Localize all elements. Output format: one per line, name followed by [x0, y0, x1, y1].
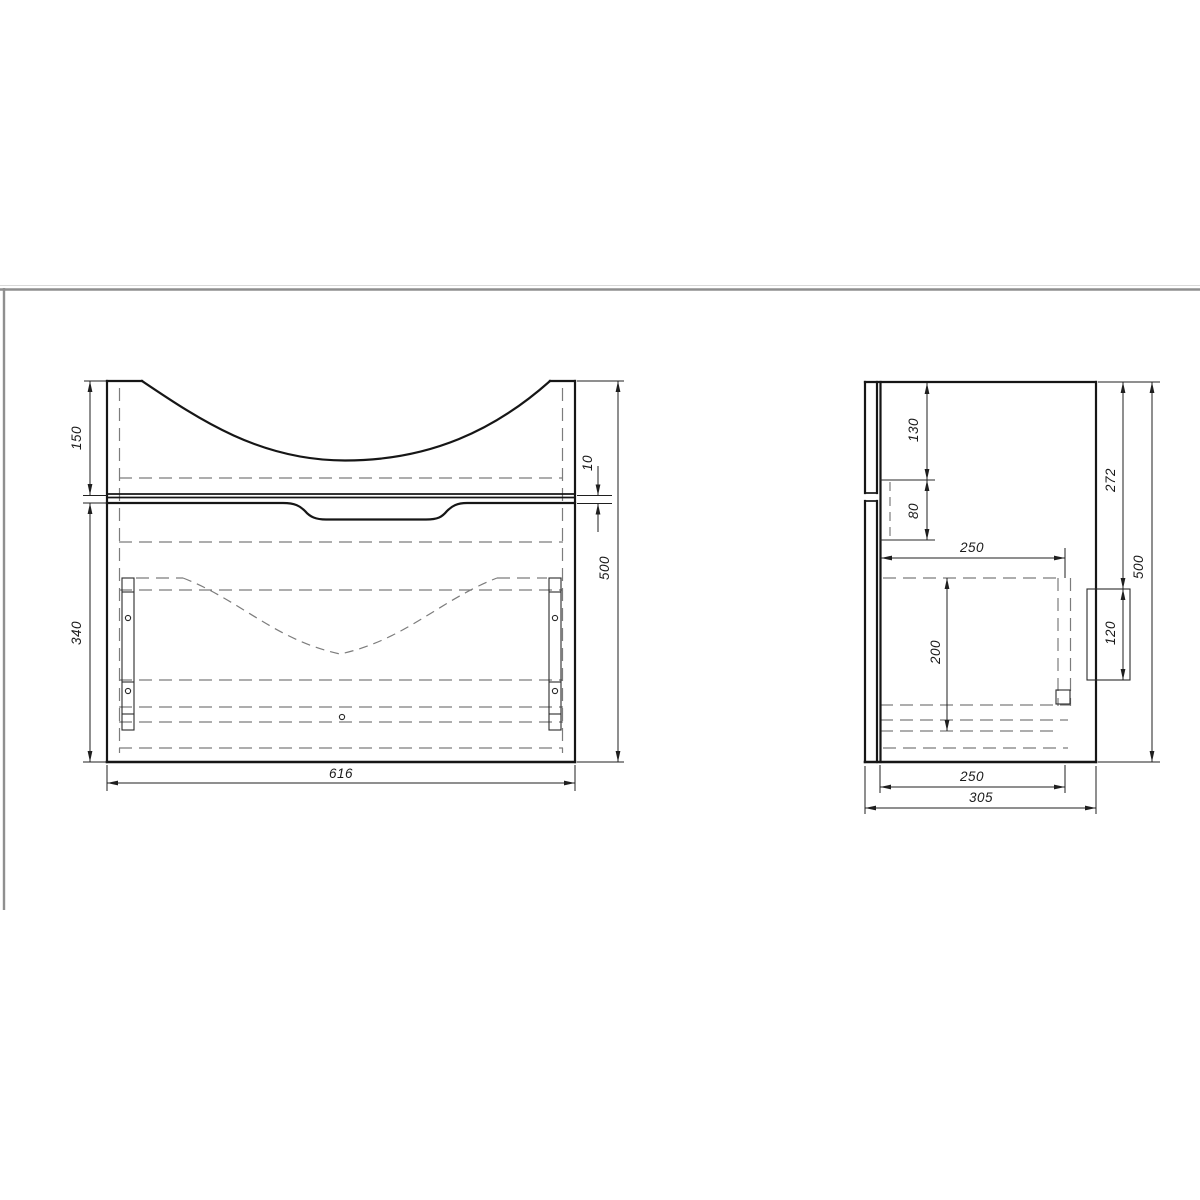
dim-side-bracket-height: 120 [1103, 621, 1118, 645]
front-outline [107, 381, 575, 762]
center-screw-hole [339, 714, 344, 719]
dim-front-total-height: 500 [597, 556, 612, 580]
sink-basin-curve [142, 381, 550, 461]
dim-front-width: 616 [329, 766, 353, 781]
dim-side-total-height: 500 [1131, 555, 1146, 579]
screw-hole [552, 688, 557, 693]
side-hidden-lines [880, 482, 1071, 748]
screw-hole [552, 615, 557, 620]
side-view: 130 80 250 200 272 120 500 [865, 382, 1160, 814]
dim-front-top-section-height: 150 [69, 426, 84, 450]
dim-side-bracket-offset: 272 [1103, 468, 1118, 493]
dim-side-top-offset: 130 [906, 418, 921, 442]
dim-front-gap: 10 [580, 455, 595, 471]
sheet-border [0, 286, 1200, 911]
drawer-front-handle-recess [107, 503, 575, 520]
front-dimensions: 150 340 616 10 500 [69, 381, 624, 791]
front-hidden-lines [119, 388, 563, 753]
dim-side-drawer-height: 200 [928, 640, 943, 665]
dim-side-total-depth: 305 [969, 790, 993, 805]
side-dimensions: 130 80 250 200 272 120 500 [865, 382, 1160, 814]
drawing-sheet: 150 340 616 10 500 [0, 0, 1200, 1200]
dim-front-drawer-section-height: 340 [69, 621, 84, 645]
dim-side-siphon-height: 80 [906, 503, 921, 519]
front-view: 150 340 616 10 500 [69, 381, 624, 791]
screw-hole [125, 688, 130, 693]
dim-side-drawer-depth-bottom: 250 [959, 769, 984, 784]
screw-hole [125, 615, 130, 620]
dim-side-drawer-depth-top: 250 [959, 540, 984, 555]
technical-drawing-canvas: 150 340 616 10 500 [0, 0, 1200, 1200]
